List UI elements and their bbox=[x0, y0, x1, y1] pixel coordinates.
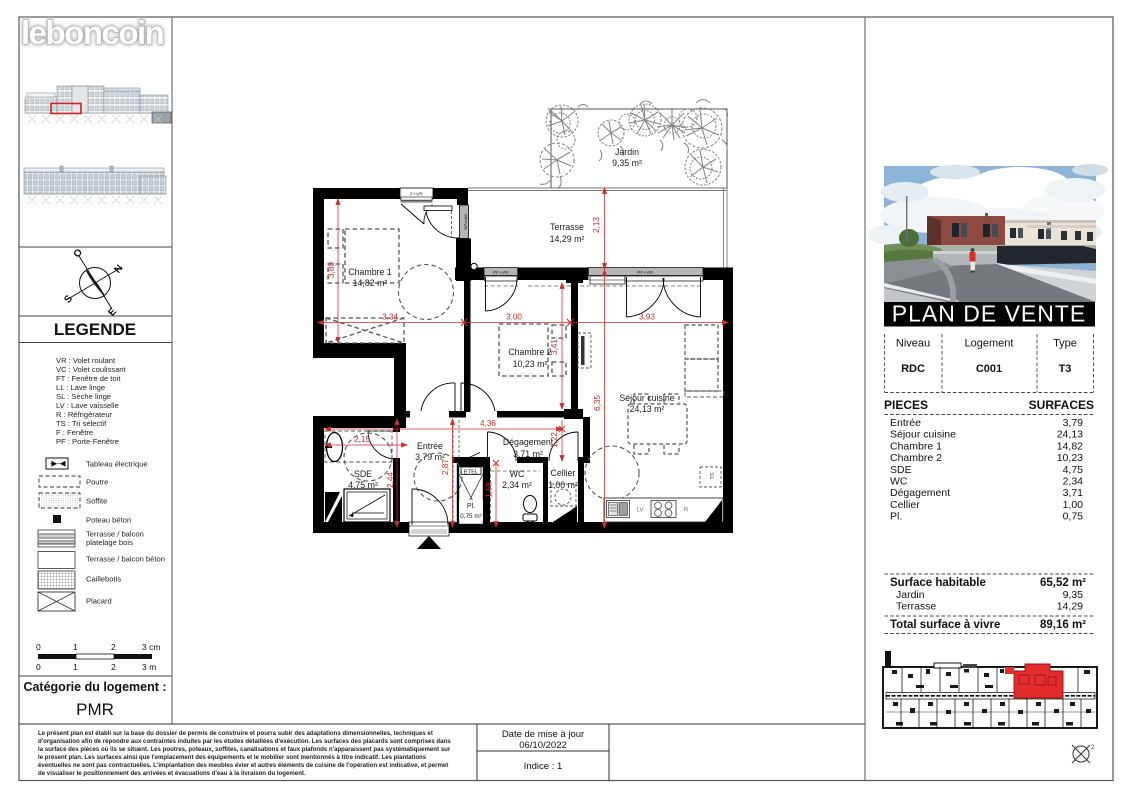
svg-text:SDE: SDE bbox=[354, 469, 372, 479]
svg-text:1,58: 1,58 bbox=[485, 482, 494, 498]
svg-text:2,44: 2,44 bbox=[386, 472, 395, 488]
svg-text:Niveau: Niveau bbox=[896, 338, 930, 350]
svg-text:2,34 m²: 2,34 m² bbox=[502, 480, 532, 490]
svg-text:3,34: 3,34 bbox=[382, 313, 398, 322]
svg-text:Catégorie du logement :: Catégorie du logement : bbox=[23, 680, 166, 694]
svg-text:d'organisation afin de répondr: d'organisation afin de répondre aux cont… bbox=[38, 738, 451, 745]
svg-text:1,00 m²: 1,00 m² bbox=[548, 480, 578, 490]
svg-text:WC: WC bbox=[890, 476, 908, 488]
svg-text:2: 2 bbox=[111, 662, 116, 672]
svg-text:PIECES: PIECES bbox=[884, 398, 928, 412]
svg-text:PF+VR: PF+VR bbox=[462, 214, 468, 230]
svg-text:4,75 m²: 4,75 m² bbox=[348, 480, 378, 490]
svg-text:0,75 m²: 0,75 m² bbox=[460, 513, 482, 520]
svg-text:Date de mise à jour: Date de mise à jour bbox=[502, 729, 584, 740]
svg-text:RDC: RDC bbox=[901, 363, 925, 375]
svg-text:2,87: 2,87 bbox=[441, 459, 450, 475]
svg-text:le présent plan. Les surfaces: le présent plan. Les surfaces ainsi que … bbox=[38, 754, 427, 761]
svg-text:Chambre 2: Chambre 2 bbox=[890, 452, 942, 464]
svg-text:Terrasse: Terrasse bbox=[896, 601, 936, 613]
svg-text:VR : Volet roulant: VR : Volet roulant bbox=[56, 356, 116, 365]
svg-text:la surface des pièces où ils s: la surface des pièces où ils se situent.… bbox=[38, 746, 451, 753]
svg-text:Pl.: Pl. bbox=[890, 511, 902, 523]
svg-text:9,35 m²: 9,35 m² bbox=[612, 158, 642, 168]
svg-text:TS : Tri sélectif: TS : Tri sélectif bbox=[56, 419, 107, 428]
svg-text:65,52 m²: 65,52 m² bbox=[1040, 577, 1086, 589]
svg-text:PF+VR: PF+VR bbox=[637, 270, 653, 276]
svg-text:Poutre: Poutre bbox=[86, 478, 108, 487]
svg-text:Dégagement: Dégagement bbox=[890, 487, 950, 499]
svg-text:Séjour cuisine: Séjour cuisine bbox=[619, 393, 674, 403]
svg-text:FT : Fenêtre de toit: FT : Fenêtre de toit bbox=[56, 374, 121, 383]
svg-text:14,29: 14,29 bbox=[1057, 601, 1083, 613]
svg-text:3,71: 3,71 bbox=[1063, 487, 1084, 499]
svg-text:3,71 m²: 3,71 m² bbox=[513, 449, 543, 459]
svg-text:4,75: 4,75 bbox=[1063, 464, 1084, 476]
svg-text:Indice : 1: Indice : 1 bbox=[524, 761, 563, 772]
svg-text:2: 2 bbox=[111, 642, 116, 652]
svg-text:2,15: 2,15 bbox=[354, 435, 370, 444]
svg-text:14,82: 14,82 bbox=[1057, 440, 1083, 452]
svg-text:leboncoin: leboncoin bbox=[21, 14, 164, 51]
svg-text:Jardin: Jardin bbox=[896, 589, 925, 601]
svg-text:3 m: 3 m bbox=[142, 662, 156, 672]
svg-text:LV: LV bbox=[637, 508, 644, 514]
svg-text:F : Fenêtre: F : Fenêtre bbox=[56, 428, 93, 437]
svg-text:1,22: 1,22 bbox=[550, 432, 559, 448]
svg-text:Poteau béton: Poteau béton bbox=[86, 516, 131, 525]
svg-text:SURFACES: SURFACES bbox=[1029, 398, 1094, 412]
svg-text:Séjour cuisine: Séjour cuisine bbox=[890, 429, 956, 441]
svg-text:Cellier: Cellier bbox=[551, 468, 576, 478]
svg-text:14,29 m²: 14,29 m² bbox=[550, 234, 585, 244]
svg-text:Entrée: Entrée bbox=[890, 417, 921, 429]
svg-text:T3: T3 bbox=[1059, 363, 1072, 375]
svg-text:3,93: 3,93 bbox=[639, 313, 655, 322]
svg-text:LEGENDE: LEGENDE bbox=[54, 320, 136, 339]
svg-text:R: R bbox=[684, 508, 689, 514]
svg-text:de visualiser le positionnemen: de visualiser le positionnement des arri… bbox=[38, 770, 306, 777]
svg-text:14,82 m²: 14,82 m² bbox=[353, 278, 388, 288]
svg-text:Le présent plan est établi sur: Le présent plan est établi sur la base d… bbox=[38, 730, 433, 737]
svg-text:ETEL: ETEL bbox=[464, 470, 479, 476]
svg-text:89,16 m²: 89,16 m² bbox=[1040, 619, 1086, 631]
svg-text:9,35: 9,35 bbox=[1063, 589, 1084, 601]
svg-text:PMR: PMR bbox=[76, 700, 114, 719]
svg-text:WC: WC bbox=[510, 469, 525, 479]
svg-text:Placard: Placard bbox=[86, 597, 112, 606]
svg-text:C001: C001 bbox=[976, 363, 1002, 375]
svg-text:Chambre 1: Chambre 1 bbox=[348, 267, 392, 277]
svg-text:1,00: 1,00 bbox=[1063, 499, 1084, 511]
svg-text:VC : Volet coulissant: VC : Volet coulissant bbox=[56, 365, 127, 374]
svg-text:3 cm: 3 cm bbox=[142, 642, 160, 652]
svg-text:Terrasse: Terrasse bbox=[550, 222, 584, 232]
svg-text:TS: TS bbox=[710, 472, 716, 479]
svg-text:1: 1 bbox=[73, 662, 78, 672]
svg-text:éventuelles ne sont pas contra: éventuelles ne sont pas contractuelles. … bbox=[38, 762, 448, 769]
svg-text:Pl.: Pl. bbox=[467, 503, 475, 510]
svg-text:2,34: 2,34 bbox=[1063, 476, 1084, 488]
svg-text:10,23 m²: 10,23 m² bbox=[513, 359, 548, 369]
svg-text:4,36: 4,36 bbox=[480, 419, 496, 428]
svg-text:Chambre 1: Chambre 1 bbox=[890, 440, 942, 452]
svg-text:Jardin: Jardin bbox=[615, 147, 639, 157]
svg-text:3,00: 3,00 bbox=[506, 313, 522, 322]
svg-text:R : Réfrigérateur: R : Réfrigérateur bbox=[56, 410, 113, 419]
svg-text:24,13 m²: 24,13 m² bbox=[630, 404, 665, 414]
svg-text:PF+VR: PF+VR bbox=[493, 270, 509, 276]
svg-text:Chambre 2: Chambre 2 bbox=[508, 347, 552, 357]
svg-text:SDE: SDE bbox=[890, 464, 912, 476]
svg-text:2,13: 2,13 bbox=[592, 217, 601, 233]
svg-text:LL : Lave linge: LL : Lave linge bbox=[56, 383, 105, 392]
svg-text:Type: Type bbox=[1053, 338, 1077, 350]
svg-text:Caillebotis: Caillebotis bbox=[86, 575, 121, 584]
svg-text:platelage bois: platelage bois bbox=[86, 538, 133, 547]
svg-text:06/10/2022: 06/10/2022 bbox=[519, 740, 567, 751]
svg-text:0: 0 bbox=[36, 662, 41, 672]
svg-text:6,35: 6,35 bbox=[593, 395, 602, 411]
svg-text:3,41: 3,41 bbox=[550, 339, 559, 355]
svg-text:Soffite: Soffite bbox=[86, 497, 107, 506]
svg-text:3,80: 3,80 bbox=[327, 262, 336, 278]
svg-text:PF : Porte-Fenêtre: PF : Porte-Fenêtre bbox=[56, 437, 119, 446]
svg-text:Total surface à vivre: Total surface à vivre bbox=[890, 619, 1000, 631]
svg-text:SL : Sèche linge: SL : Sèche linge bbox=[56, 392, 111, 401]
svg-text:0,75: 0,75 bbox=[1063, 511, 1084, 523]
svg-text:Terrasse / balcon béton: Terrasse / balcon béton bbox=[86, 555, 165, 564]
svg-text:Entrée: Entrée bbox=[417, 441, 443, 451]
svg-text:Tableau électrique: Tableau électrique bbox=[86, 460, 148, 469]
svg-text:F+VR: F+VR bbox=[410, 192, 423, 198]
svg-text:Dégagement: Dégagement bbox=[503, 437, 554, 447]
svg-text:LV : Lave vaisselle: LV : Lave vaisselle bbox=[56, 401, 119, 410]
svg-text:0: 0 bbox=[36, 642, 41, 652]
svg-text:24,13: 24,13 bbox=[1057, 429, 1083, 441]
svg-text:3,79: 3,79 bbox=[1063, 417, 1084, 429]
svg-text:10,23: 10,23 bbox=[1057, 452, 1083, 464]
svg-text:Surface habitable: Surface habitable bbox=[890, 577, 986, 589]
svg-text:Cellier: Cellier bbox=[890, 499, 920, 511]
svg-text:Logement: Logement bbox=[965, 338, 1014, 350]
svg-text:PLAN DE VENTE: PLAN DE VENTE bbox=[892, 301, 1087, 327]
svg-text:1: 1 bbox=[73, 642, 78, 652]
